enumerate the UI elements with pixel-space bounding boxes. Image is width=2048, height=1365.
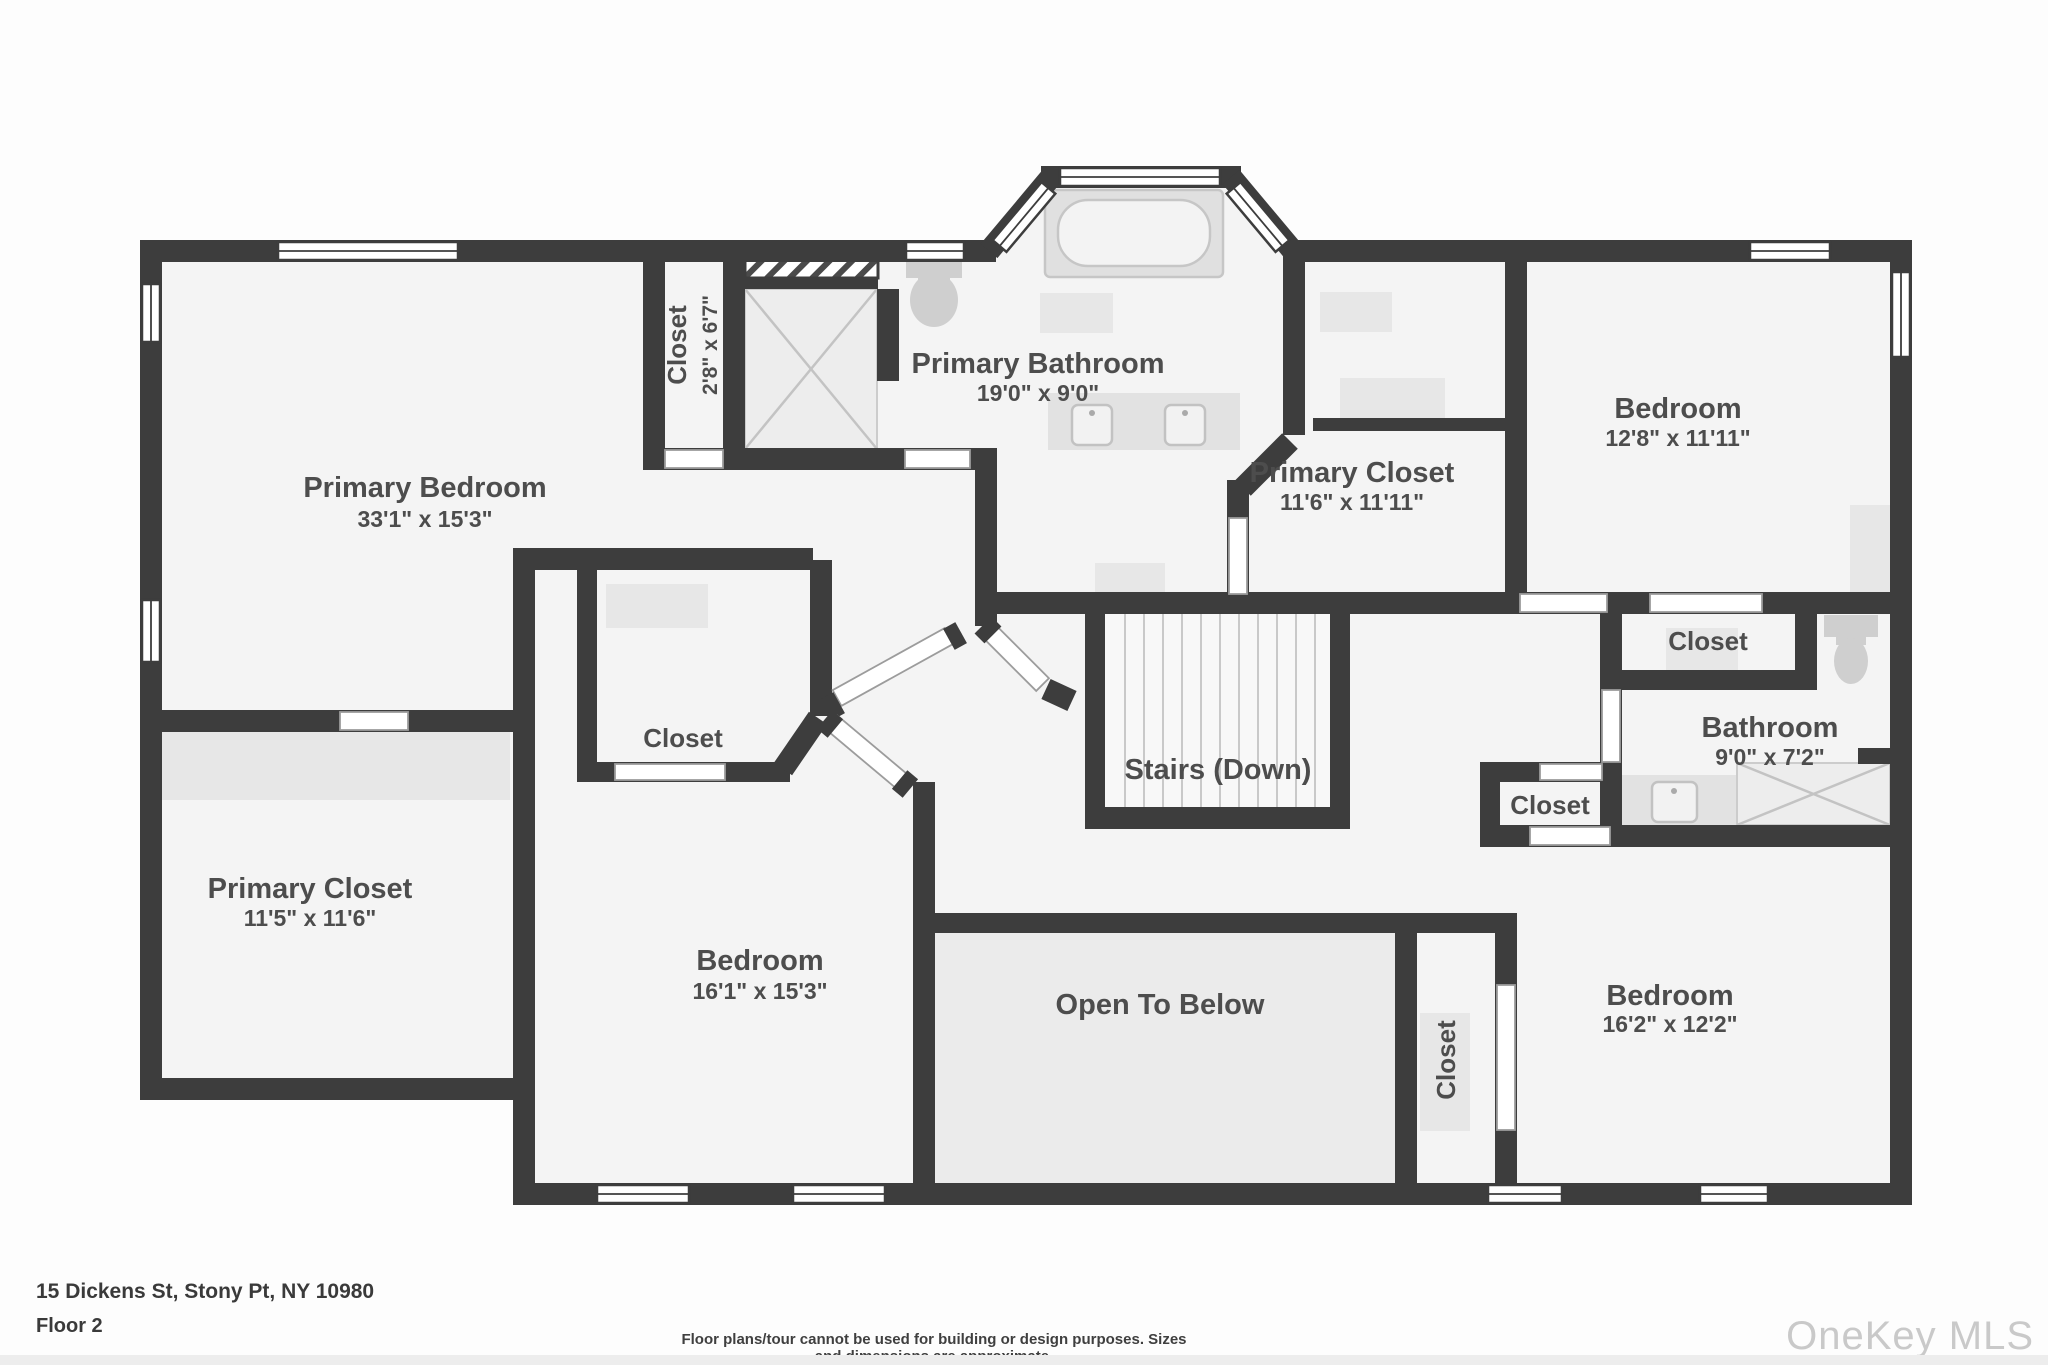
window-icon	[906, 242, 964, 260]
room-dims-bedroom-bottom-right: 16'2" x 12'2"	[1602, 1011, 1737, 1037]
room-dims-primary-closet-lower: 11'5" x 11'6"	[244, 905, 377, 931]
window-icon	[1892, 272, 1910, 357]
closet-shelf-icon	[1320, 292, 1392, 332]
room-label-closet-bump: Closet	[643, 723, 723, 753]
hall-shelf-icon	[1095, 563, 1165, 592]
door-opening	[1520, 594, 1607, 612]
door-opening	[615, 764, 725, 780]
door-opening	[905, 450, 970, 468]
bathtub-icon	[1045, 190, 1223, 277]
room-label-closet-hall: Closet	[1510, 790, 1590, 820]
closet-shelf-icon	[606, 584, 708, 628]
room-dims-bedroom-top-right: 12'8" x 11'11"	[1605, 425, 1750, 451]
room-label-bedroom-left: Bedroom	[696, 945, 823, 977]
room-label-closet-top-right: Closet	[1668, 626, 1748, 656]
door-opening	[1650, 594, 1762, 612]
window-icon	[1750, 242, 1830, 260]
bedroom-shelf-icon	[1850, 505, 1890, 598]
window-icon	[597, 1185, 689, 1203]
room-dims-primary-bathroom: 19'0" x 9'0"	[977, 380, 1099, 406]
room-label-primary-bathroom: Primary Bathroom	[911, 348, 1164, 380]
room-label-open-to-below: Open To Below	[1056, 989, 1265, 1021]
room-label-stairs: Stairs (Down)	[1125, 754, 1312, 786]
window-icon	[1488, 1185, 1562, 1203]
room-label-bedroom-bottom-right: Bedroom	[1606, 980, 1733, 1012]
room-dims-primary-closet: 11'6" x 11'11"	[1280, 489, 1424, 515]
footer-address: 15 Dickens St, Stony Pt, NY 10980	[36, 1280, 374, 1304]
open-to-below-area	[935, 930, 1395, 1183]
bath-shelf-icon	[1040, 293, 1113, 333]
window-icon	[142, 284, 160, 342]
room-dims-bathroom: 9'0" x 7'2"	[1715, 744, 1825, 770]
door-opening	[1530, 827, 1610, 845]
room-label-bedroom-top-right: Bedroom	[1614, 393, 1741, 425]
window-icon	[793, 1185, 885, 1203]
room-label-primary-closet: Primary Closet	[1250, 457, 1455, 489]
window-icon	[278, 242, 458, 260]
closet-shelf-icon	[162, 732, 510, 800]
watermark-logo: OneKey MLS	[1786, 1314, 2034, 1359]
window-icon	[1060, 168, 1220, 186]
window-icon	[142, 600, 160, 662]
footer-floor-label: Floor 2	[36, 1315, 103, 1338]
room-dims-primary-closet-small: 2'8" x 6'7"	[699, 295, 722, 395]
shower-icon	[745, 289, 877, 449]
room-label-primary-bedroom: Primary Bedroom	[303, 472, 546, 504]
closet-partition-wall	[1313, 418, 1505, 431]
door-opening	[665, 450, 723, 468]
room-label-bathroom: Bathroom	[1702, 712, 1839, 744]
door-opening	[1602, 690, 1620, 762]
room-label-closet-strip: Closet	[1431, 1020, 1461, 1100]
window-icon	[1700, 1185, 1768, 1203]
room-dims-primary-bedroom: 33'1" x 15'3"	[357, 506, 492, 532]
door-opening	[1497, 985, 1515, 1130]
door-opening	[340, 712, 408, 730]
room-label-primary-closet-small: Closet	[662, 305, 692, 385]
floor-plan-page: Primary Bedroom 33'1" x 15'3" Closet 2'8…	[0, 0, 2048, 1365]
shower-icon	[1737, 763, 1890, 825]
room-dims-bedroom-left: 16'1" x 15'3"	[692, 978, 827, 1004]
floor-plan-canvas: Primary Bedroom 33'1" x 15'3" Closet 2'8…	[0, 0, 2048, 1365]
footer-strip	[0, 1355, 2048, 1365]
vanity-icon	[1622, 775, 1740, 825]
room-label-primary-closet-lower: Primary Closet	[208, 873, 413, 905]
door-opening	[1540, 764, 1602, 780]
door-opening	[1229, 518, 1247, 594]
closet-shelf-icon	[1340, 378, 1445, 418]
